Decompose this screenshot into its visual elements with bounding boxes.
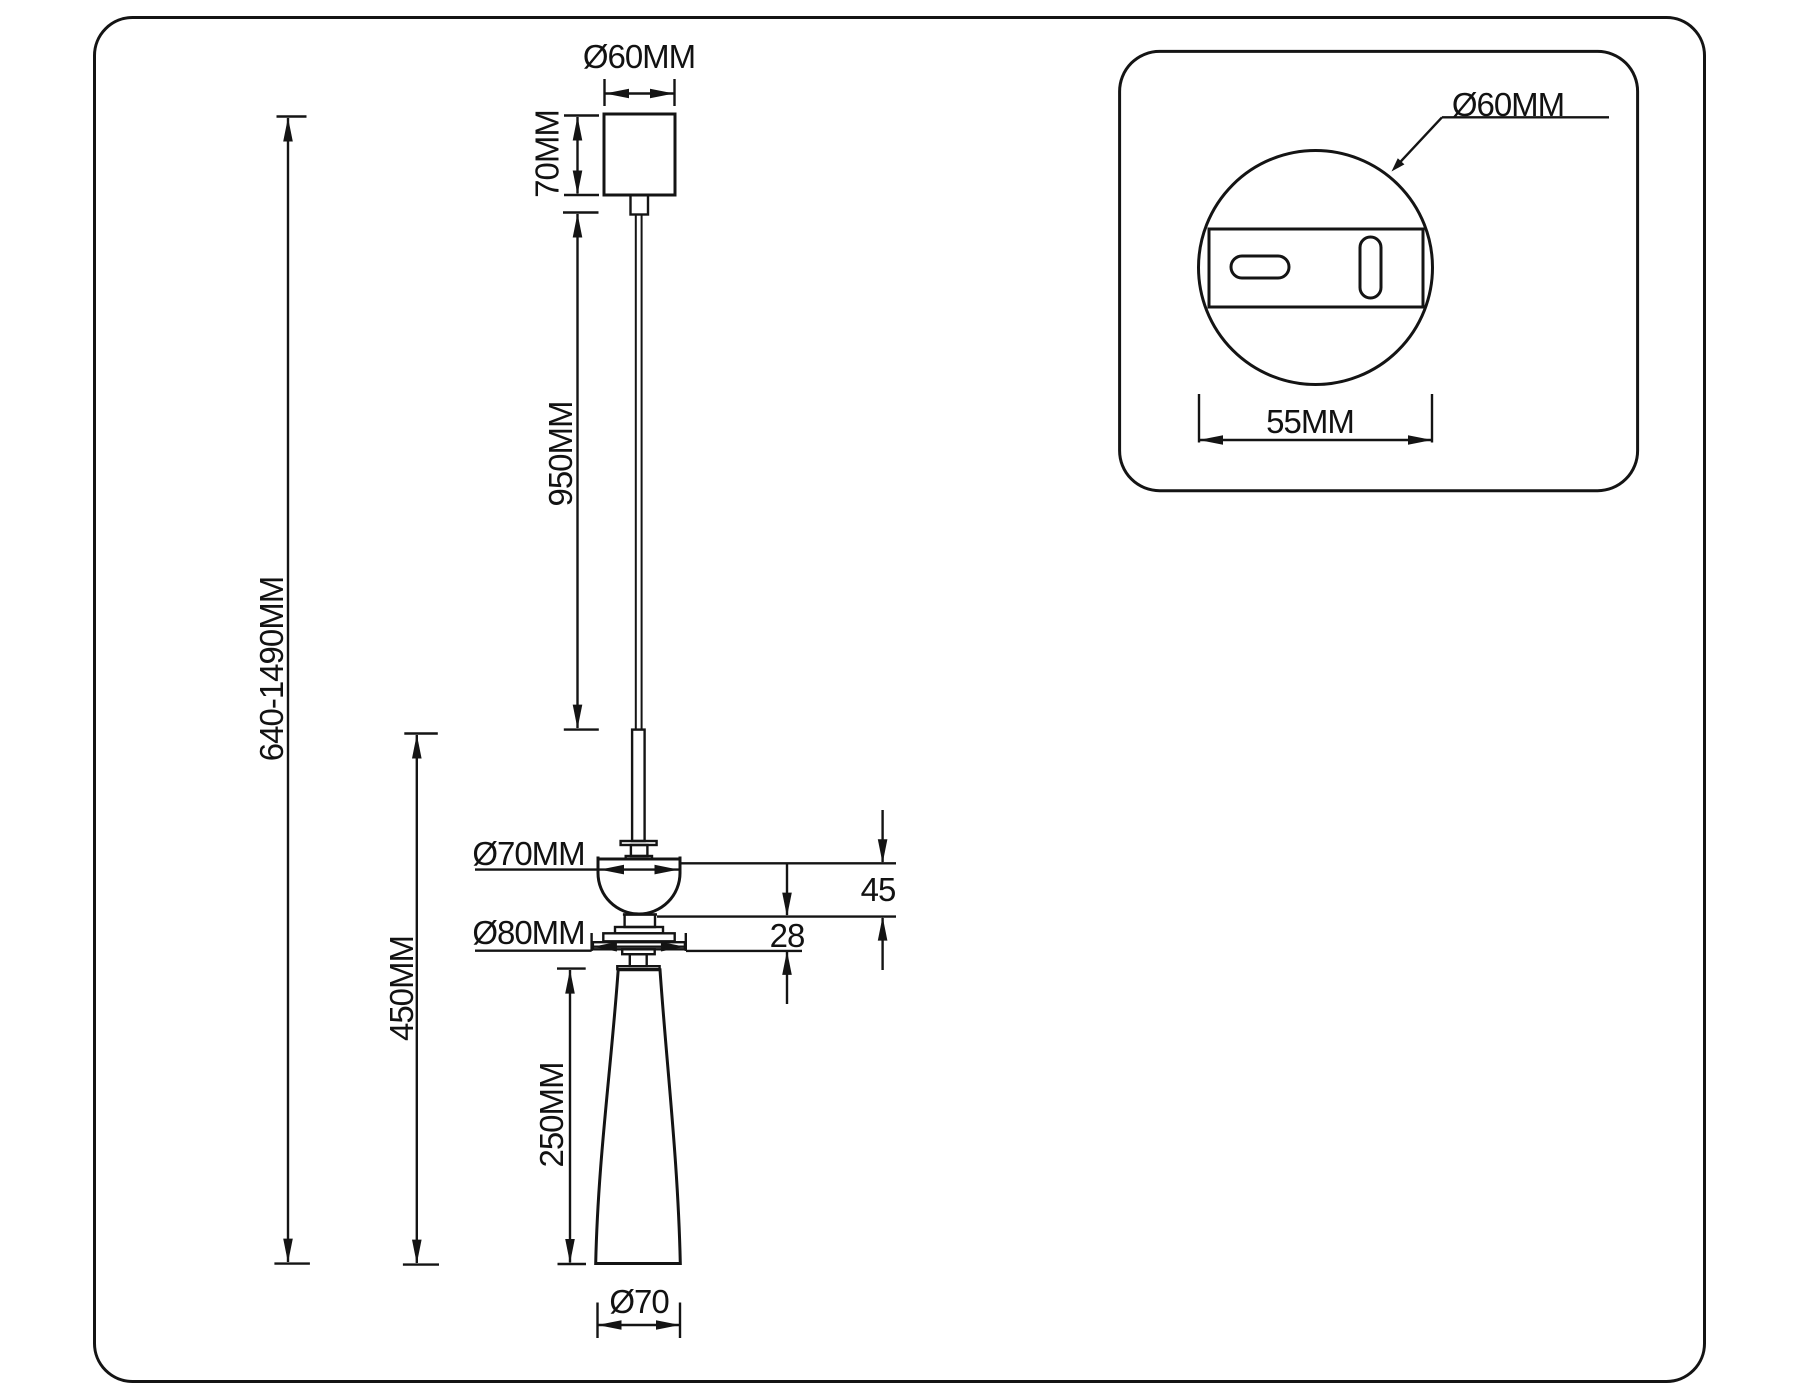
svg-text:250MM: 250MM (533, 1062, 570, 1167)
svg-text:950MM: 950MM (542, 401, 579, 506)
svg-text:55MM: 55MM (1266, 403, 1354, 440)
svg-text:Ø70MM: Ø70MM (472, 835, 584, 872)
svg-text:Ø70: Ø70 (609, 1283, 669, 1320)
svg-text:640-1490MM: 640-1490MM (253, 577, 290, 761)
svg-text:Ø80MM: Ø80MM (472, 914, 584, 951)
svg-text:Ø60MM: Ø60MM (583, 38, 695, 75)
svg-text:45: 45 (861, 871, 896, 908)
svg-text:28: 28 (770, 917, 805, 954)
svg-text:450MM: 450MM (383, 936, 420, 1041)
svg-text:70MM: 70MM (529, 110, 566, 198)
